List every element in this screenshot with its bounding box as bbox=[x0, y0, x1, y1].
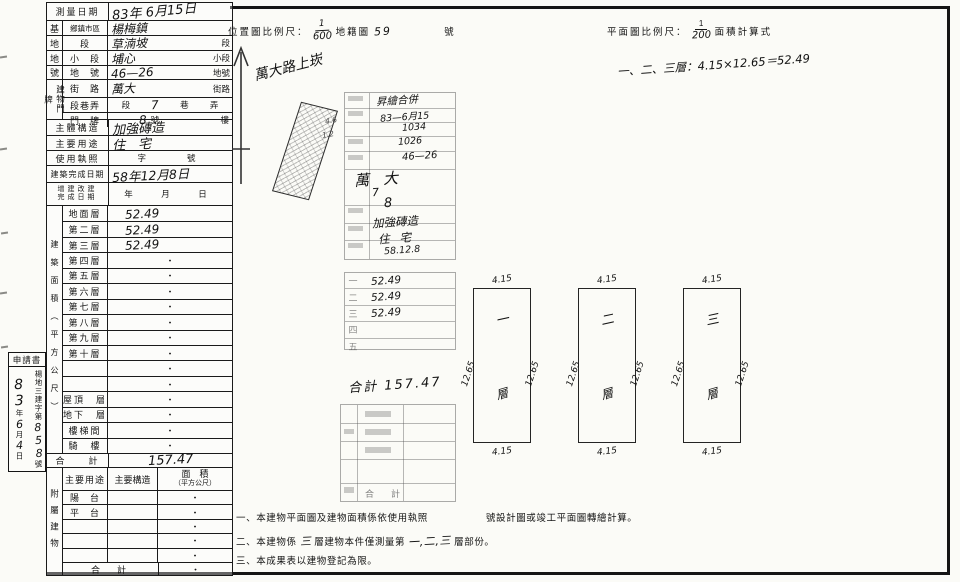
field-label: 鄉鎮市區 bbox=[63, 21, 108, 35]
row-street: 街 路 萬大街路 bbox=[63, 80, 232, 97]
field-value: 46—26地號 bbox=[108, 66, 232, 79]
annex-area-text: ・ bbox=[190, 491, 199, 504]
plan-dim-left: 12.65 bbox=[670, 360, 687, 388]
floor-area-value: ・ bbox=[108, 439, 232, 453]
annex-area-text: ・ bbox=[190, 520, 199, 533]
floor-label: 第四層 bbox=[63, 253, 108, 267]
floor-row: ・ bbox=[63, 376, 232, 391]
north-arrow-icon bbox=[230, 46, 252, 188]
plan-dim-bottom: 4.15 bbox=[492, 446, 513, 458]
handwritten-day: 4 bbox=[13, 439, 27, 453]
floor-area-text: ・ bbox=[165, 408, 174, 421]
floor-area-text: ・ bbox=[165, 254, 174, 267]
floor-row: 地面層 52.49 bbox=[63, 206, 232, 221]
note1-part1: 一、本建物平面圖及建物面積係依使用執照 bbox=[236, 513, 428, 524]
plan-floor-char: 層 bbox=[704, 384, 720, 404]
annex-usage bbox=[63, 520, 108, 533]
floor-label bbox=[63, 361, 108, 375]
field-label-line2: 完成日期 bbox=[58, 194, 98, 202]
plot-dimension-note: 4.6 bbox=[324, 115, 337, 126]
floor-area-value: ・ bbox=[108, 331, 232, 345]
annex-usage: 陽 台 bbox=[63, 491, 108, 504]
annex-usage bbox=[63, 549, 108, 562]
handwritten-docno: 858 bbox=[31, 420, 46, 460]
survey-table: 測量日期 83年 6月15日 基 鄉鎮市區 楊梅鎮 地 段 草湳坡段 地 小 段… bbox=[46, 2, 233, 576]
location-scale-fraction: 1 600 bbox=[313, 20, 332, 42]
field-label: 街 路 bbox=[63, 80, 108, 97]
floor-row: 地下 層 ・ bbox=[63, 407, 232, 422]
annex-header-structure: 主要構造 bbox=[108, 468, 158, 490]
floor-area-text: ・ bbox=[165, 269, 174, 282]
annex-structure bbox=[108, 534, 158, 547]
floor-area-text: ・ bbox=[165, 424, 174, 437]
annex-rows-wrap: 主要用途 主要構造 面 積 （平方公尺） 陽 台 ・ bbox=[63, 468, 232, 575]
handwritten-value: 46—26 bbox=[111, 64, 154, 80]
floor-label: 地面層 bbox=[63, 206, 108, 221]
stamp-floor-area: 52.49 bbox=[371, 306, 402, 320]
floor-area-value: ・ bbox=[108, 377, 232, 391]
floor-area-value: ・ bbox=[108, 392, 232, 406]
floor-label: 騎 樓 bbox=[63, 439, 108, 453]
floor-label: 第三層 bbox=[63, 238, 108, 252]
group-label: 建物門牌 bbox=[47, 80, 63, 119]
row-section: 地 段 草湳坡段 bbox=[47, 35, 232, 50]
plan-scale-fraction: 1 200 bbox=[692, 20, 711, 41]
annex-area: ・ bbox=[158, 505, 232, 518]
stamp-floor-area: 52.49 bbox=[371, 274, 402, 288]
annex-row: ・ bbox=[63, 519, 232, 533]
plan-dim-bottom: 4.15 bbox=[702, 446, 723, 458]
stamp-floor-row: 四 bbox=[345, 321, 455, 337]
annex-area: ・ bbox=[158, 520, 232, 533]
floor-area-text: ・ bbox=[165, 285, 174, 298]
plan-dim-right: 12.65 bbox=[734, 360, 751, 388]
floor-label bbox=[63, 377, 108, 391]
annex-usage: 平 台 bbox=[63, 505, 108, 518]
handwritten-value: 7 bbox=[151, 98, 159, 112]
group-char: 基 bbox=[47, 21, 63, 35]
floor-row: 第十層 ・ bbox=[63, 345, 232, 360]
note2-handwritten-1: 三 bbox=[299, 533, 311, 550]
field-value: 83年 6月15日 bbox=[109, 3, 232, 20]
plan-dim-bottom: 4.15 bbox=[597, 446, 618, 458]
field-label: 小 段 bbox=[63, 51, 108, 65]
field-value: 58年12月8日 bbox=[109, 166, 232, 182]
field-value: 住 宅 bbox=[109, 136, 232, 150]
floor-area-value: ・ bbox=[108, 361, 232, 375]
stamp-total-handwritten: 合計 157.47 bbox=[347, 371, 442, 396]
sheet-number-suffix: 號 bbox=[444, 24, 456, 38]
scan-tick bbox=[1, 346, 8, 349]
handwritten-value: 埔心 bbox=[111, 49, 136, 67]
field-label: 增建改建 完成日期 bbox=[47, 183, 109, 205]
annex-area-text: ・ bbox=[190, 506, 199, 519]
application-receipt-box: 申請書 83年6月4日 楊地三建字第858號 bbox=[8, 352, 46, 472]
cadastral-map-label: 地籍圖 bbox=[336, 24, 371, 38]
row-usage: 主要用途 住 宅 bbox=[47, 135, 232, 150]
row-subsection: 地 小 段 埔心小段 bbox=[47, 50, 232, 65]
floor-row: 騎 樓 ・ bbox=[63, 438, 232, 453]
floor-area-value: ・ bbox=[108, 408, 232, 422]
fraction-denominator: 600 bbox=[312, 31, 332, 43]
floor-area-text: 52.49 bbox=[125, 237, 160, 253]
floor-area-text: ・ bbox=[165, 393, 174, 406]
group-char: 號 bbox=[47, 66, 63, 79]
field-label: 地 號 bbox=[63, 66, 108, 79]
printed-suffix: 小段 bbox=[213, 52, 230, 64]
stamp-floor-row: 五 bbox=[345, 338, 455, 354]
plan-scale-header: 平面圖比例尺： 1 200 面積計算式 bbox=[607, 20, 772, 41]
total-label: 合 計 bbox=[47, 454, 109, 467]
location-scale-label: 位置圖比例尺： bbox=[228, 24, 309, 38]
field-value: 字 號 bbox=[109, 151, 232, 165]
row-license: 使用執照 字 號 bbox=[47, 150, 232, 165]
printed-unit: 段 bbox=[122, 99, 131, 111]
fraction-numerator: 1 bbox=[695, 20, 707, 30]
row-district: 基 鄉鎮市區 楊梅鎮 bbox=[47, 20, 232, 35]
stamp-floor-number: 三 bbox=[345, 307, 361, 320]
floor-area-value: ・ bbox=[108, 284, 232, 298]
handwritten-area-formula: 一、二、三層：4.15×12.65＝52.49 bbox=[617, 50, 811, 79]
plan-dim-left: 12.65 bbox=[565, 360, 582, 388]
annex-structure bbox=[108, 520, 158, 533]
handwritten-year: 83 bbox=[10, 377, 28, 410]
floor-area-text: ・ bbox=[165, 331, 174, 344]
floor-plan-rect: 4.15 4.15 12.65 12.65 一 層 bbox=[473, 288, 531, 443]
annex-row: ・ bbox=[63, 548, 232, 562]
floor-area-value: ・ bbox=[108, 423, 232, 437]
handwritten-road-note: 萬大路上崁 bbox=[252, 49, 325, 85]
building-area-section: 建築面積（平方公尺） 地面層 52.49 第二層 52.49 第三層 bbox=[47, 205, 232, 453]
field-value: 年 月 日 bbox=[109, 183, 232, 205]
row-lot-number: 號 地 號 46—26地號 bbox=[47, 65, 232, 79]
group-char: 地 bbox=[47, 36, 63, 50]
floor-area-text: ・ bbox=[165, 300, 174, 313]
floor-plan-rect: 4.15 4.15 12.65 12.65 三 層 bbox=[683, 288, 741, 443]
handwritten-sheet-number: 59 bbox=[374, 24, 393, 38]
floor-area-value: 52.49 bbox=[108, 222, 232, 236]
application-box-body: 83年6月4日 楊地三建字第858號 bbox=[9, 367, 45, 471]
floor-area-text: ・ bbox=[165, 439, 174, 452]
notes-line-2: 二、本建物係三層建物本件僅測量第一,二,三層部份。 bbox=[236, 533, 495, 549]
floor-area-text: 52.49 bbox=[125, 206, 160, 222]
stamp-floor-number: 五 bbox=[345, 340, 361, 353]
floor-area-text: 52.49 bbox=[125, 222, 160, 238]
plan-dim-right: 12.65 bbox=[629, 360, 646, 388]
printed-unit: 巷 bbox=[180, 99, 189, 111]
floor-label: 第七層 bbox=[63, 300, 108, 314]
annex-header-area: 面 積 （平方公尺） bbox=[158, 468, 232, 490]
stamp-street: 萬大 bbox=[353, 166, 412, 191]
floor-label: 第六層 bbox=[63, 284, 108, 298]
floor-row: ・ bbox=[63, 360, 232, 375]
annex-area: ・ bbox=[158, 534, 232, 547]
stamp-floor-number: 二 bbox=[345, 291, 361, 304]
field-label: 段巷弄 bbox=[63, 98, 108, 112]
floor-label: 第二層 bbox=[63, 222, 108, 236]
field-label: 主要用途 bbox=[47, 136, 109, 150]
floor-area-value: ・ bbox=[108, 269, 232, 283]
fraction-denominator: 200 bbox=[691, 30, 711, 42]
application-docno-column: 楊地三建字第858號 bbox=[27, 367, 45, 471]
stamp-floor-number: 一 bbox=[345, 274, 361, 287]
floor-row: 樓梯間 ・ bbox=[63, 422, 232, 437]
stamp-number-2: 1026 bbox=[398, 135, 423, 148]
annex-header-area-line2: （平方公尺） bbox=[174, 480, 216, 488]
annex-area-text: ・ bbox=[190, 534, 199, 547]
sheet-border-right bbox=[947, 6, 950, 575]
stamp-floor-area: 52.49 bbox=[371, 290, 402, 304]
handwritten-value: 萬大 bbox=[111, 79, 136, 97]
printed-unit: 弄 bbox=[210, 99, 219, 111]
stamp-floor-number: 四 bbox=[345, 323, 361, 336]
floor-area-value: ・ bbox=[108, 346, 232, 360]
plan-floor-char: 層 bbox=[599, 384, 615, 404]
annex-area-text: ・ bbox=[190, 549, 199, 562]
group-char: 地 bbox=[47, 51, 63, 65]
floor-row: 第七層 ・ bbox=[63, 299, 232, 314]
handwritten-month: 6 bbox=[13, 417, 27, 431]
address-section: 建物門牌 街 路 萬大街路 段巷弄 段 7 巷 弄 門 牌 bbox=[47, 79, 232, 119]
field-value: 加強磚造 bbox=[109, 120, 232, 135]
annex-building-section: 附屬建物 主要用途 主要構造 面 積 （平方公尺） 陽 台 bbox=[47, 467, 232, 575]
floor-area-value: ・ bbox=[108, 300, 232, 314]
note2-part1: 二、本建物係 bbox=[236, 537, 297, 548]
floor-row: 第四層 ・ bbox=[63, 252, 232, 267]
annex-total-value: ・ bbox=[159, 563, 232, 575]
floor-area-text: ・ bbox=[165, 362, 174, 375]
annex-row: ・ bbox=[63, 533, 232, 547]
plan-floor-number: 二 bbox=[599, 308, 616, 329]
note1-part2: 號設計圖或竣工平面圖轉繪計算。 bbox=[486, 513, 638, 524]
floor-label: 地下 層 bbox=[63, 408, 108, 422]
row-survey-date: 測量日期 83年 6月15日 bbox=[47, 2, 232, 20]
year-unit: 年 bbox=[15, 409, 24, 418]
floor-row: 第八層 ・ bbox=[63, 314, 232, 329]
scan-tick bbox=[0, 56, 7, 59]
field-value: 草湳坡段 bbox=[108, 36, 232, 50]
field-label: 使用執照 bbox=[47, 151, 109, 165]
day-unit: 日 bbox=[15, 452, 24, 461]
printed-suffix: 地號 bbox=[213, 67, 230, 79]
annex-structure bbox=[108, 491, 158, 504]
row-alteration-date: 增建改建 完成日期 年 月 日 bbox=[47, 182, 232, 205]
row-lane: 段巷弄 段 7 巷 弄 bbox=[63, 97, 232, 112]
stamp-number-1: 1034 bbox=[402, 121, 427, 134]
annex-area: ・ bbox=[158, 491, 232, 504]
floor-label: 第五層 bbox=[63, 269, 108, 283]
notes-line-3: 三、本成果表以建物登記為限。 bbox=[236, 553, 377, 567]
annex-header-area-line1: 面 積 bbox=[181, 470, 208, 480]
plan-floor-number: 三 bbox=[704, 308, 721, 329]
floor-row: 第三層 52.49 bbox=[63, 237, 232, 252]
annex-structure bbox=[108, 505, 158, 518]
floor-label: 屋頂 層 bbox=[63, 392, 108, 406]
floor-area-text: ・ bbox=[165, 347, 174, 360]
address-rows: 街 路 萬大街路 段巷弄 段 7 巷 弄 門 牌 8 號 bbox=[63, 80, 232, 119]
annex-total-text: ・ bbox=[191, 563, 200, 576]
printed-value: 字 號 bbox=[137, 152, 203, 164]
sheet-border-top bbox=[230, 6, 950, 9]
application-date-column: 83年6月4日 bbox=[9, 367, 27, 471]
docno-prefix: 楊地三建字第 bbox=[34, 370, 43, 421]
floor-plan-rect: 4.15 4.15 12.65 12.65 二 層 bbox=[578, 288, 636, 443]
group-label: 建築面積（平方公尺） bbox=[47, 206, 63, 453]
stamp-floor-row: 二 52.49 bbox=[345, 288, 455, 304]
annex-structure bbox=[108, 549, 158, 562]
notes-line-1: 一、本建物平面圖及建物面積係依使用執照號設計圖或竣工平面圖轉繪計算。 bbox=[236, 510, 637, 524]
plan-dim-top: 4.15 bbox=[491, 274, 512, 287]
stamp-floor-row: 一 52.49 bbox=[345, 273, 455, 288]
floor-rows: 地面層 52.49 第二層 52.49 第三層 52.49 第四層 bbox=[63, 206, 232, 453]
total-value: 157.47 bbox=[109, 454, 232, 467]
annex-header-row: 主要用途 主要構造 面 積 （平方公尺） bbox=[63, 468, 232, 490]
floor-row: 第六層 ・ bbox=[63, 283, 232, 298]
note2-part2: 層建物本件僅測量第 bbox=[314, 537, 405, 548]
plan-dim-right: 12.65 bbox=[524, 360, 541, 388]
stamp-floor-box: 一 52.49 二 52.49 三 52.49 四 bbox=[344, 272, 456, 350]
plan-dim-top: 4.15 bbox=[701, 274, 722, 287]
stamp-bottom-total: 合 計 bbox=[365, 487, 404, 500]
plan-dim-left: 12.65 bbox=[460, 360, 477, 388]
stamp-title-note: 昇繪合併 bbox=[376, 92, 419, 110]
stamp-floor-row: 三 52.49 bbox=[345, 305, 455, 321]
row-total-area: 合 計 157.47 bbox=[47, 453, 232, 467]
floor-area-text: ・ bbox=[165, 378, 174, 391]
field-label: 主體構造 bbox=[47, 120, 109, 135]
floor-row: 屋頂 層 ・ bbox=[63, 391, 232, 406]
annex-row: 陽 台 ・ bbox=[63, 490, 232, 504]
note2-part3: 層部份。 bbox=[454, 537, 494, 548]
floor-row: 第九層 ・ bbox=[63, 330, 232, 345]
registration-stamp: 昇繪合併 83—6月15 1034 1026 46—26 萬大 7 8 加強磚造… bbox=[340, 92, 460, 506]
floor-label: 第十層 bbox=[63, 346, 108, 360]
scan-tick bbox=[0, 292, 7, 295]
field-label: 段 bbox=[63, 36, 108, 50]
row-completion-date: 建築完成日期 58年12月8日 bbox=[47, 165, 232, 182]
stamp-lane: 7 bbox=[372, 186, 380, 199]
floor-area-value: 52.49 bbox=[108, 238, 232, 252]
area-calc-label: 面積計算式 bbox=[715, 24, 773, 38]
docno-suffix: 號 bbox=[34, 460, 43, 469]
plan-scale-label: 平面圖比例尺： bbox=[607, 24, 688, 38]
floor-row: 第五層 ・ bbox=[63, 268, 232, 283]
field-value: 段 7 巷 弄 bbox=[108, 98, 232, 112]
annex-row: 平 台 ・ bbox=[63, 504, 232, 518]
floor-plans: 4.15 4.15 12.65 12.65 一 層 4.15 4.15 12.6… bbox=[457, 288, 741, 443]
field-value: 萬大街路 bbox=[108, 80, 232, 97]
annex-rows: 陽 台 ・ 平 台 ・ bbox=[63, 490, 232, 562]
note2-handwritten-2: 一,二,三 bbox=[408, 532, 452, 550]
scan-tick bbox=[0, 148, 7, 151]
annex-area: ・ bbox=[158, 549, 232, 562]
annex-total-label: 合 計 bbox=[63, 563, 159, 575]
plot-dimension-note: 1.2 bbox=[321, 129, 334, 140]
annex-header-usage: 主要用途 bbox=[63, 468, 108, 490]
location-scale-header: 位置圖比例尺： 1 600 地籍圖 59 號 bbox=[228, 20, 456, 42]
field-label-line1: 增建改建 bbox=[58, 186, 98, 194]
plan-floor-char: 層 bbox=[494, 384, 510, 404]
plan-floor-number: 一 bbox=[494, 308, 511, 329]
floor-area-value: 52.49 bbox=[108, 206, 232, 221]
annex-usage bbox=[63, 534, 108, 547]
group-label: 附屬建物 bbox=[47, 468, 63, 575]
field-value: 楊梅鎮 bbox=[108, 21, 232, 35]
field-value: 埔心小段 bbox=[108, 51, 232, 65]
floor-label: 樓梯間 bbox=[63, 423, 108, 437]
scanned-survey-form-page: 測量日期 83年 6月15日 基 鄉鎮市區 楊梅鎮 地 段 草湳坡段 地 小 段… bbox=[0, 0, 960, 582]
field-label: 建築完成日期 bbox=[47, 166, 109, 182]
printed-value: 年 月 日 bbox=[124, 188, 217, 200]
handwritten-value: 157.47 bbox=[147, 452, 193, 469]
stamp-door: 8 bbox=[383, 196, 392, 212]
floor-row: 第二層 52.49 bbox=[63, 221, 232, 236]
floor-area-value: ・ bbox=[108, 315, 232, 329]
printed-suffix: 街路 bbox=[213, 83, 230, 95]
fraction-numerator: 1 bbox=[315, 20, 329, 32]
floor-area-value: ・ bbox=[108, 253, 232, 267]
floor-label: 第九層 bbox=[63, 331, 108, 345]
annex-total-row: 合 計 ・ bbox=[63, 562, 232, 575]
floor-area-text: ・ bbox=[165, 316, 174, 329]
scan-tick bbox=[1, 232, 8, 235]
stamp-lower-box: 合 計 bbox=[340, 404, 456, 502]
field-label: 測量日期 bbox=[47, 3, 109, 20]
plan-dim-top: 4.15 bbox=[596, 274, 617, 287]
floor-label: 第八層 bbox=[63, 315, 108, 329]
application-box-title: 申請書 bbox=[9, 353, 45, 367]
